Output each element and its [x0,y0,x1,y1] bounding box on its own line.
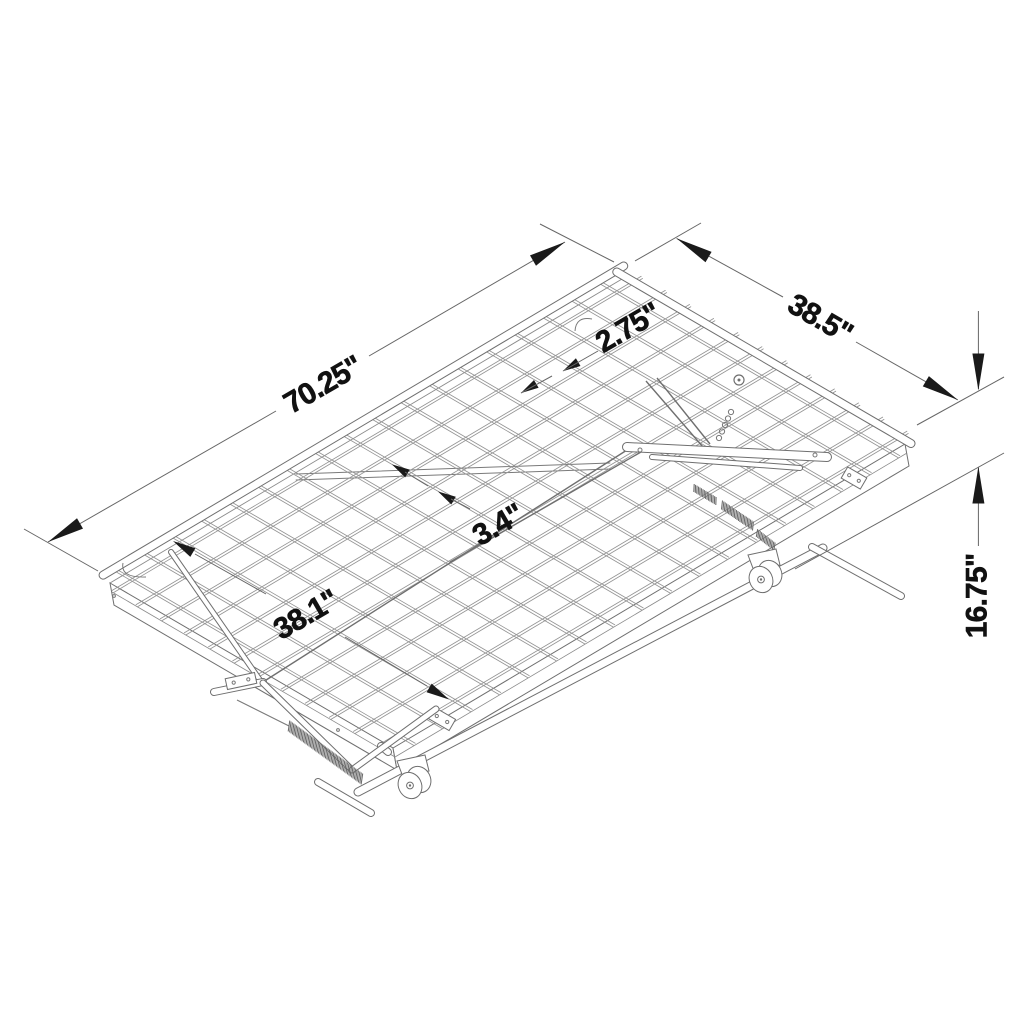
svg-text:16.75": 16.75" [961,554,994,639]
